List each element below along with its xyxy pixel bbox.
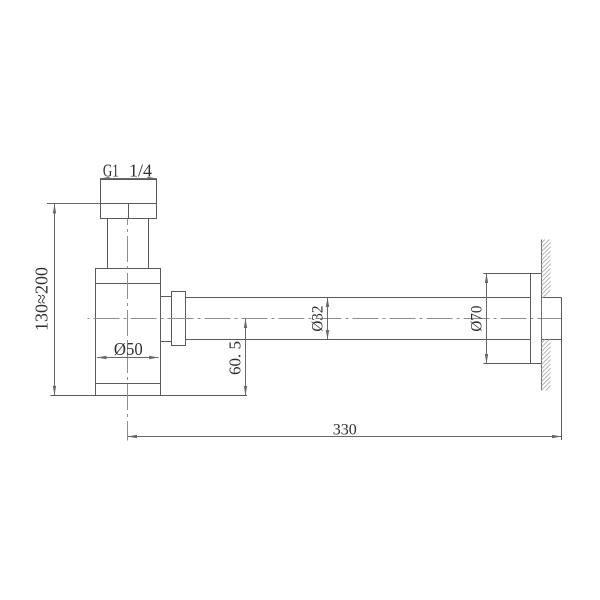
svg-text:130≈200: 130≈200: [32, 267, 52, 331]
svg-text:330: 330: [333, 422, 357, 439]
svg-text:Ø32: Ø32: [309, 306, 326, 332]
svg-text:Ø50: Ø50: [114, 339, 143, 359]
svg-text:Ø70: Ø70: [468, 305, 485, 331]
svg-text:60. 5: 60. 5: [226, 341, 245, 375]
